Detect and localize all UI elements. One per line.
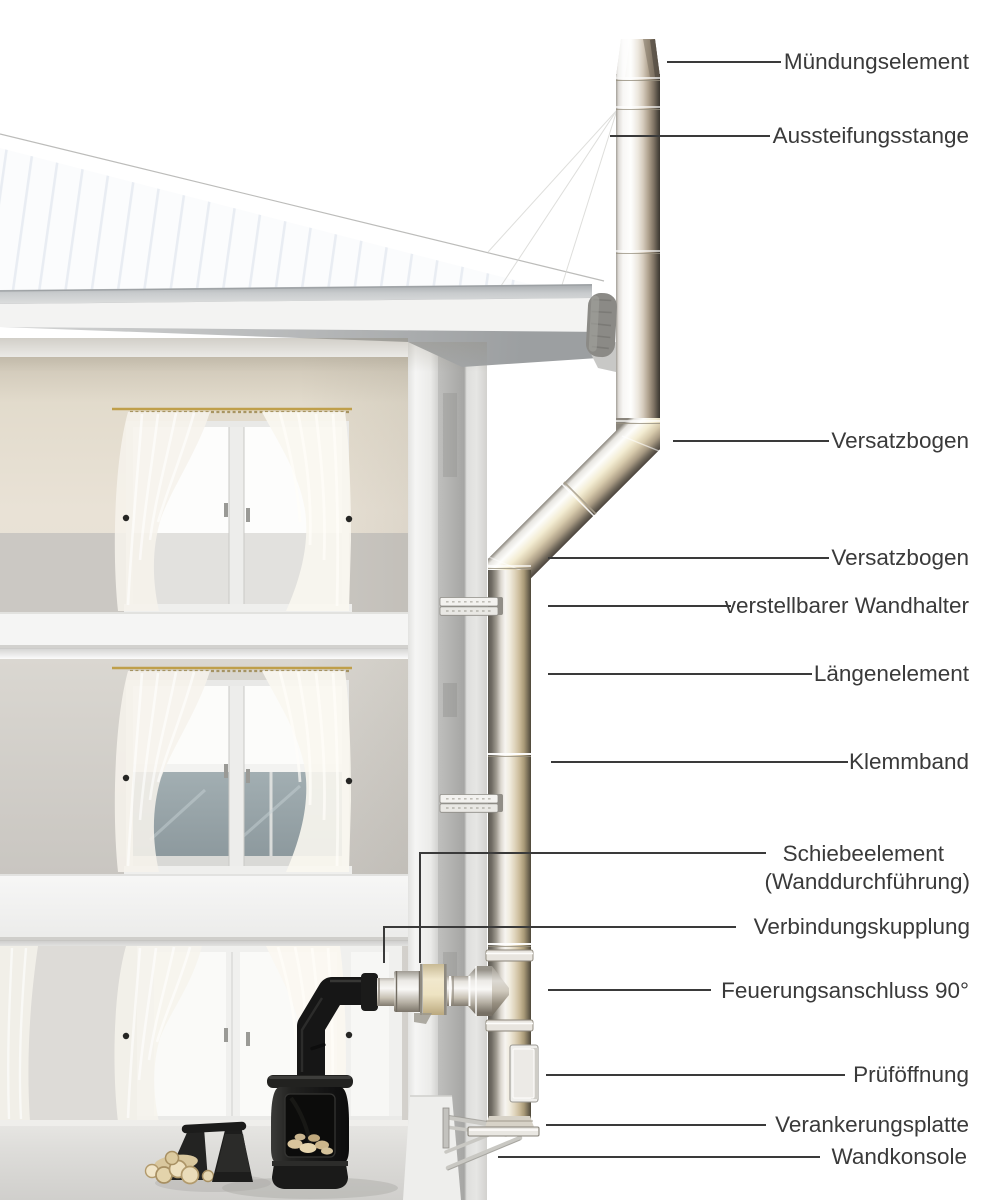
svg-text:(Wanddurchführung): (Wanddurchführung) xyxy=(764,869,970,894)
svg-text:Feuerungsanschluss 90°: Feuerungsanschluss 90° xyxy=(721,978,969,1003)
svg-text:verstellbarer Wandhalter: verstellbarer Wandhalter xyxy=(725,593,970,618)
svg-text:Verankerungsplatte: Verankerungsplatte xyxy=(775,1112,969,1137)
svg-text:Wandkonsole: Wandkonsole xyxy=(832,1144,968,1169)
svg-text:Mündungselement: Mündungselement xyxy=(784,49,970,74)
svg-text:Klemmband: Klemmband xyxy=(849,749,969,774)
svg-text:Versatzbogen: Versatzbogen xyxy=(831,428,969,453)
svg-text:Längenelement: Längenelement xyxy=(814,661,970,686)
svg-text:Prüföffnung: Prüföffnung xyxy=(853,1062,969,1087)
svg-text:Aussteifungsstange: Aussteifungsstange xyxy=(773,123,969,148)
svg-text:Verbindungskupplung: Verbindungskupplung xyxy=(754,914,970,939)
svg-text:Versatzbogen: Versatzbogen xyxy=(831,545,969,570)
svg-text:Schiebeelement: Schiebeelement xyxy=(783,841,945,866)
